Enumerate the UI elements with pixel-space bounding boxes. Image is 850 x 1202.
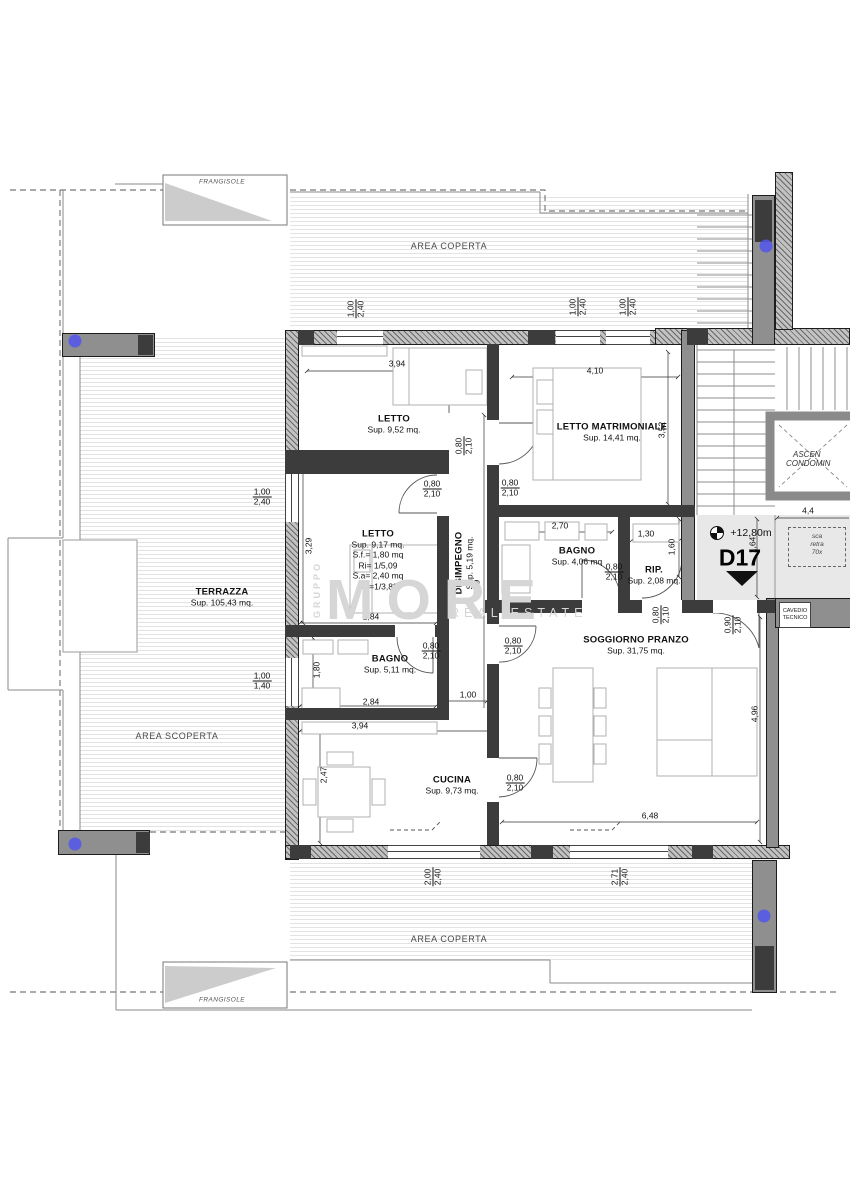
dimension-label: 1,60: [668, 539, 677, 556]
room-name: CUCINA: [426, 775, 479, 786]
passage-opening: [449, 708, 487, 720]
room-label-cucina: CUCINA Sup. 9,73 mq.: [426, 775, 479, 796]
wall-block: [136, 832, 150, 853]
dimension-label: 5,19: [473, 580, 482, 597]
wall-block: [755, 200, 772, 242]
room-name: LETTO MATRIMONIALE: [557, 422, 667, 433]
wall-block: [138, 335, 153, 355]
area-label-coperta-top: AREA COPERTA: [411, 241, 487, 251]
room-name: TERRAZZA: [191, 587, 253, 598]
room-ratio: S.f.= 1,80 mq: [352, 550, 405, 561]
window: [337, 330, 383, 345]
frangisole-label-bottom: FRANGISOLE: [199, 997, 245, 1004]
dimension-label: 2,002,40: [424, 868, 443, 887]
window: [285, 474, 299, 522]
room-area: Sup. 4,06 mq: [552, 557, 603, 567]
room-label-letto-matrimoniale: LETTO MATRIMONIALE Sup. 14,41 mq.: [557, 422, 667, 443]
dimension-label: 0,902,10: [724, 616, 743, 635]
dimension-label: 4,10: [587, 367, 604, 376]
entry-door-opening: [713, 600, 757, 613]
wall-exterior-left: [285, 330, 299, 860]
window: [388, 845, 480, 859]
cavedio-tecnico-box: CAVEDIO TECNICO: [779, 602, 811, 628]
window: [285, 658, 299, 706]
room-name: LETTO: [368, 414, 421, 425]
window: [556, 330, 600, 345]
dimension-label: 0,802,10: [455, 437, 474, 456]
elevator-label-line1: ASCEN: [793, 450, 821, 459]
wall-block: [755, 946, 774, 990]
dimension-label: 3,29: [305, 538, 314, 555]
retractable-ladder-box: sca retra 70x: [788, 527, 846, 567]
area-label-scoperta: AREA SCOPERTA: [136, 731, 219, 741]
dimension-label: 0,802,10: [652, 606, 671, 625]
room-area: Sup. 9,73 mq.: [426, 786, 479, 796]
room-name: LETTO: [352, 529, 405, 540]
dimension-label: 1,80: [313, 662, 322, 679]
dimension-label: 4,96: [751, 706, 760, 723]
room-area: Sup. 5,11 mq.: [364, 665, 416, 675]
dimension-label: 0,802,10: [422, 642, 441, 661]
room-name: RIP.: [628, 565, 681, 576]
wall-block: [687, 328, 708, 345]
room-label-soggiorno: SOGGIORNO PRANZO Sup. 31,75 mq.: [583, 635, 689, 656]
dimension-label: 0,802,10: [605, 563, 624, 582]
door-opening: [487, 420, 499, 465]
room-label-letto-2: LETTO Sup. 9,17 mq. S.f.= 1,80 mq Ri= 1/…: [352, 529, 405, 592]
door-opening: [487, 624, 499, 664]
wall-soggiorno-right: [766, 598, 779, 848]
dimension-label: 2,47: [320, 767, 329, 784]
dimension-label: 2,84: [363, 613, 380, 622]
dimension-label: 1,002,40: [347, 300, 366, 319]
door-opening: [395, 625, 435, 637]
room-name: DISIMPEGNO: [454, 532, 465, 595]
dimension-label: 0,802,10: [504, 637, 523, 656]
wall-block: [692, 845, 713, 859]
wall-block: [285, 450, 299, 462]
room-name: BAGNO: [364, 654, 416, 665]
wall-interior: [618, 517, 630, 600]
dimension-label: 1,30: [638, 530, 655, 539]
room-label-bagno-notte: BAGNO Sup. 4,06 mq: [552, 546, 603, 567]
floor-plan-drawing: LETTO Sup. 9,52 mq. LETTO MATRIMONIALE S…: [0, 0, 850, 1202]
room-name: BAGNO: [552, 546, 603, 557]
room-area: Sup. 9,17 mq.: [352, 540, 405, 550]
wall-apartment-right: [681, 330, 695, 612]
dimension-label: 1,00: [460, 691, 477, 700]
elevator-label-line2: CONDOMIN: [786, 459, 830, 468]
window: [570, 845, 668, 859]
room-ratio: Ri= 1/5,09: [352, 560, 405, 571]
room-label-rip: RIP. Sup. 2,08 mq.: [628, 565, 681, 586]
room-area: Sup. 31,75 mq.: [583, 646, 689, 656]
wall-block: [290, 845, 311, 859]
ladder-label-line2: retra: [789, 541, 845, 549]
dimension-label: 1,002,40: [253, 488, 272, 507]
wall-interior: [285, 462, 449, 474]
door-opening: [487, 758, 499, 802]
room-label-letto-1: LETTO Sup. 9,52 mq.: [368, 414, 421, 435]
dimension-label: 3,94: [352, 722, 369, 731]
dimension-label: 6,48: [642, 812, 659, 821]
column-marker-dot: [69, 335, 82, 348]
room-name: SOGGIORNO PRANZO: [583, 635, 689, 646]
dimension-label: 0,802,10: [506, 774, 525, 793]
dimension-label: 2,712,40: [611, 868, 630, 887]
room-ratio: Ra=1/3,82: [352, 581, 405, 592]
ladder-label-line3: 70x: [789, 549, 845, 557]
column-marker-dot: [69, 838, 82, 851]
wall-block: [531, 845, 553, 859]
room-area: Sup. 14,41 mq.: [557, 433, 667, 443]
door-opening: [582, 600, 618, 613]
dimension-label: 0,802,10: [501, 479, 520, 498]
dimension-label: 4,4: [802, 507, 814, 516]
dimension-label: 1,64: [749, 537, 758, 554]
room-ratio: S.a= 2,40 mq: [352, 571, 405, 582]
column-marker-dot: [758, 910, 771, 923]
wall-block: [528, 330, 555, 345]
wall-stairwell-right: [775, 172, 793, 330]
dimension-label: 1,002,40: [619, 298, 638, 317]
dimension-label: 3,52: [658, 422, 667, 439]
dimension-label: 1,001,40: [253, 672, 272, 691]
room-area: Sup. 105,43 mq.: [191, 598, 253, 608]
wall-interior: [499, 505, 695, 517]
frangisole-label-top: FRANGISOLE: [199, 179, 245, 186]
ladder-label-line1: sca: [789, 533, 845, 541]
dimension-label: 2,84: [363, 698, 380, 707]
unit-direction-arrow: [726, 571, 758, 586]
level-marker-icon: [711, 527, 724, 540]
window: [606, 330, 650, 345]
dimension-label: 1,002,40: [569, 298, 588, 317]
room-label-bagno-giorno: BAGNO Sup. 5,11 mq.: [364, 654, 416, 675]
area-label-coperta-bottom: AREA COPERTA: [411, 934, 487, 944]
dimension-label: 3,94: [389, 360, 406, 369]
dimension-label: 0,802,10: [423, 480, 442, 499]
room-label-terrazza: TERRAZZA Sup. 105,43 mq.: [191, 587, 253, 608]
wall-interior: [299, 450, 449, 462]
room-area: Sup. 2,08 mq.: [628, 576, 681, 586]
dimension-label: 2,70: [552, 522, 569, 531]
wall-block: [298, 330, 314, 345]
column-marker-dot: [760, 240, 773, 253]
cavedio-label-line1: CAVEDIO: [780, 608, 810, 615]
room-area: Sup. 9,52 mq.: [368, 425, 421, 435]
cavedio-label-line2: TECNICO: [780, 615, 810, 622]
